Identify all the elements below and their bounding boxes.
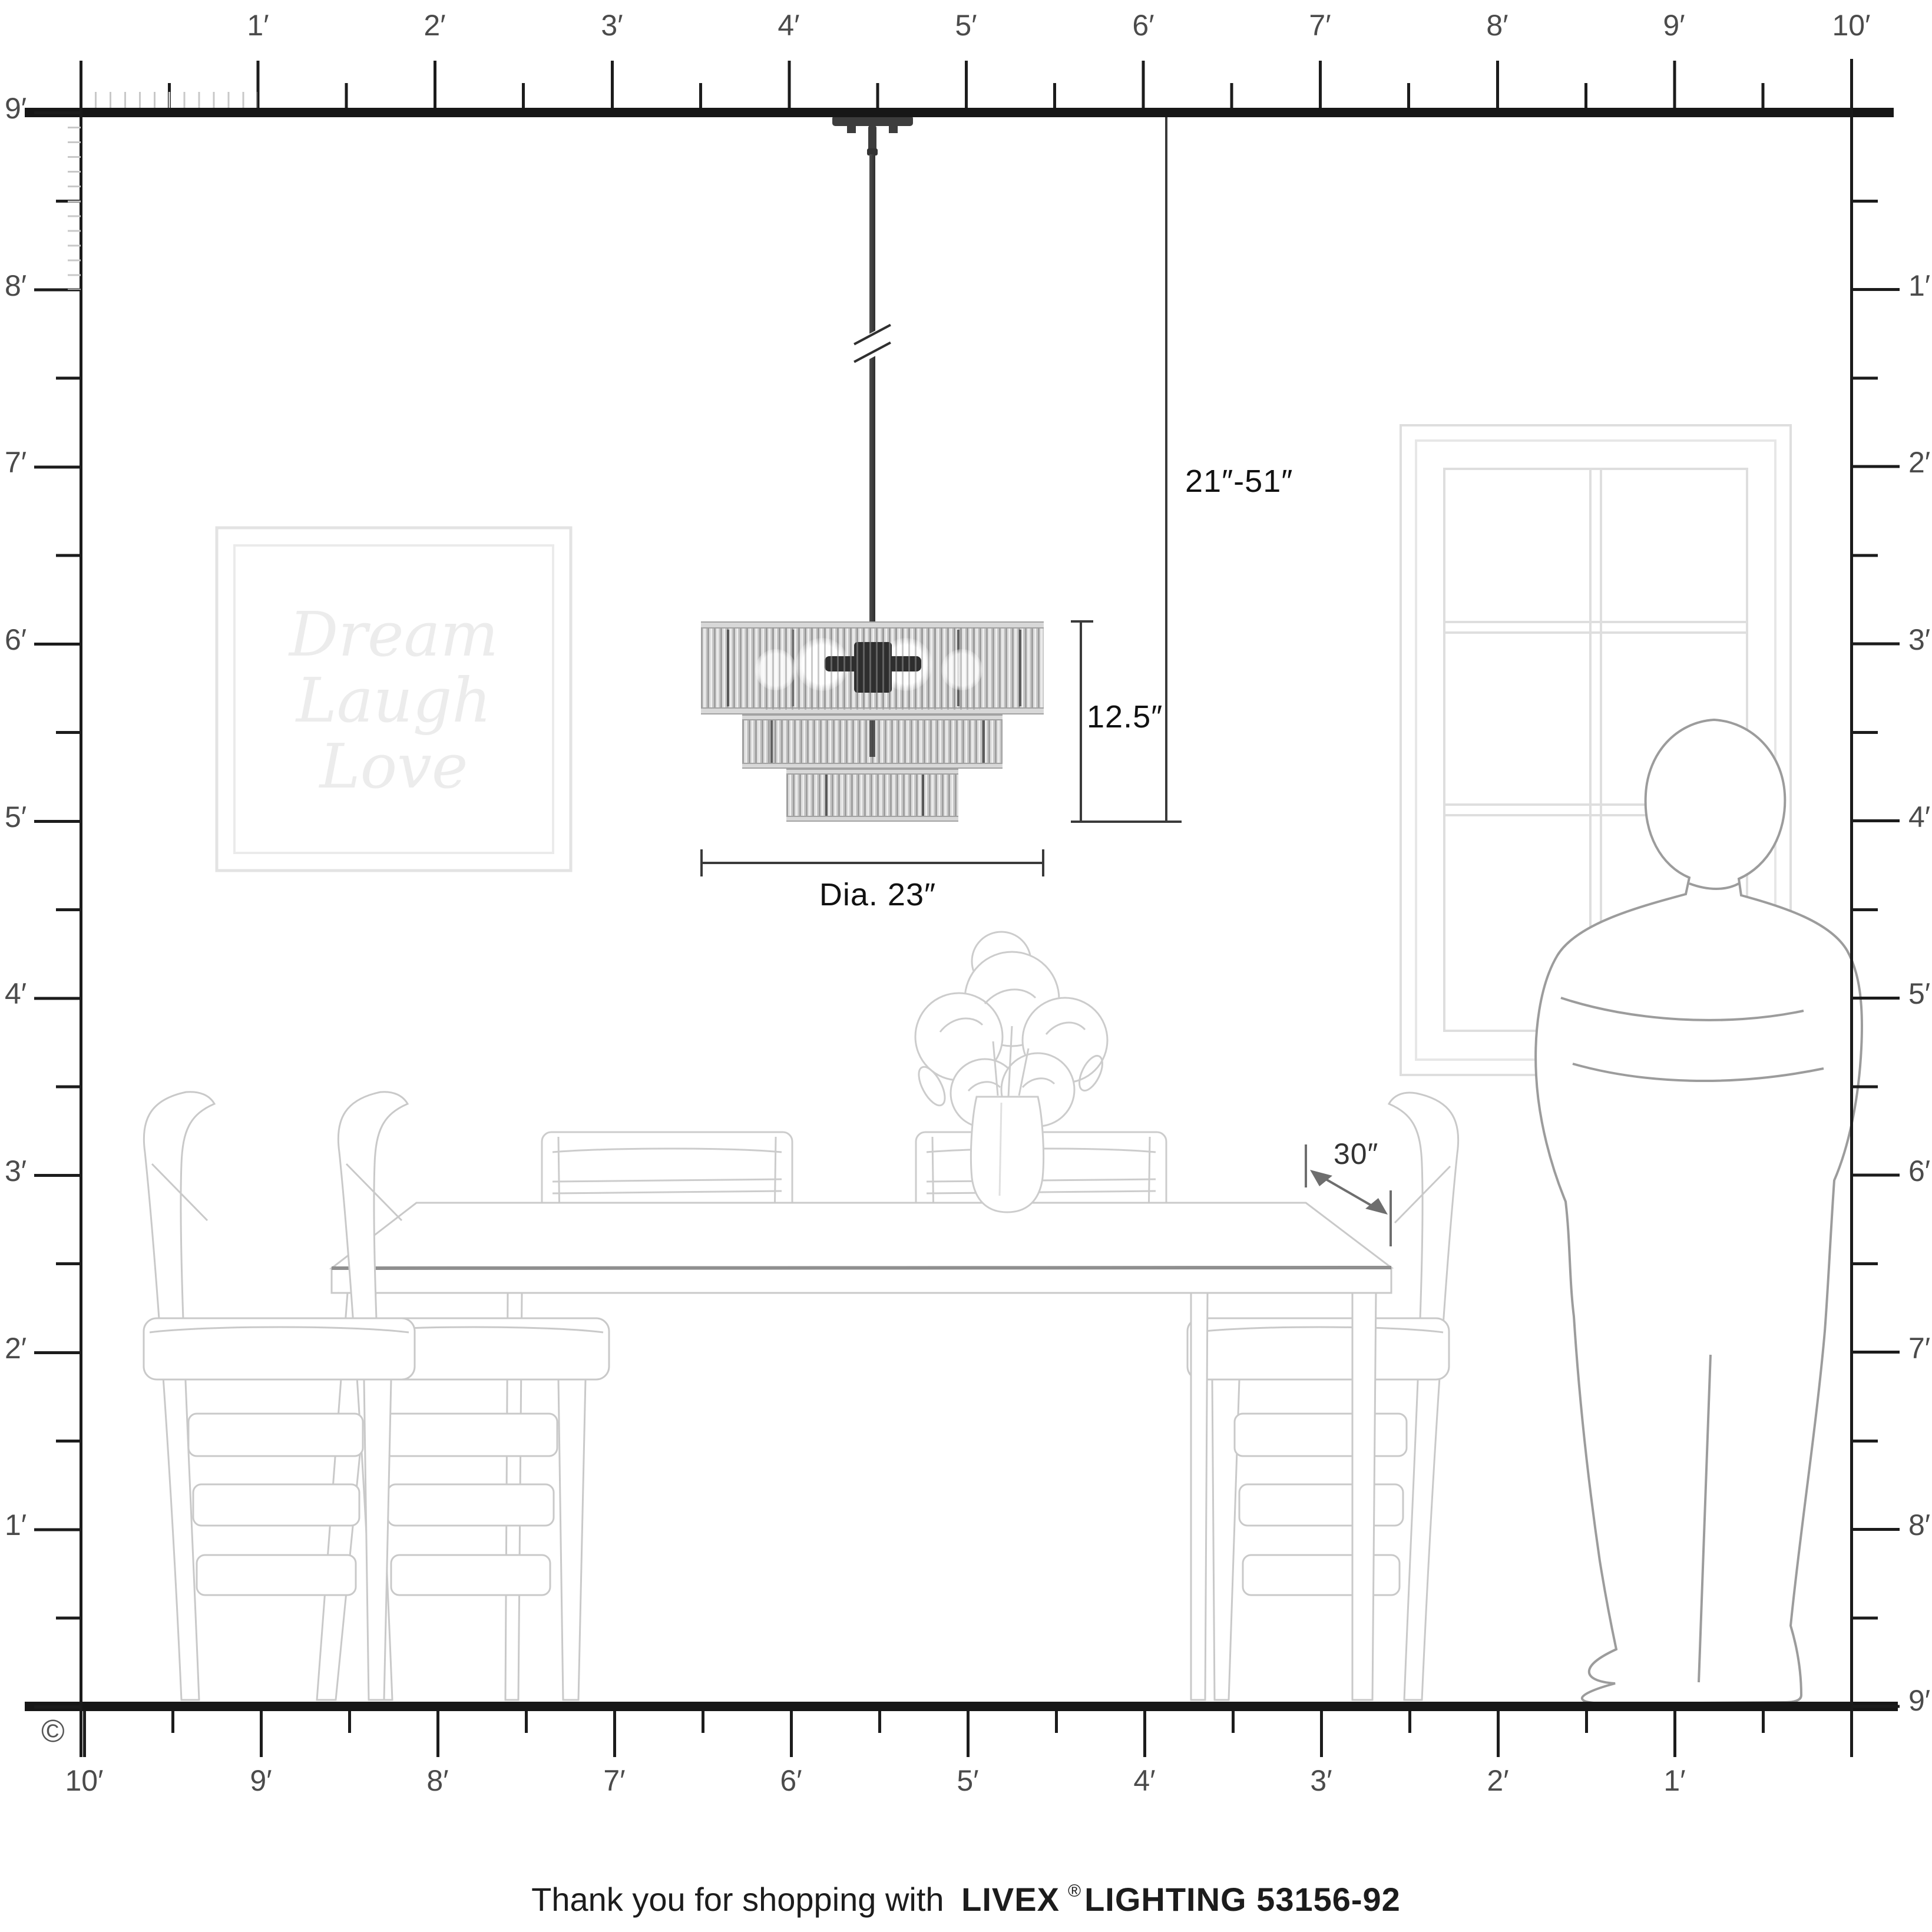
table-depth-label: 30″ bbox=[1334, 1137, 1378, 1171]
bottom-ruler-label: 10′ bbox=[46, 1764, 123, 1798]
hanging-range-label: 21″-51″ bbox=[1185, 463, 1293, 499]
bottom-ruler-label: 4′ bbox=[1106, 1764, 1183, 1798]
downrod-upper bbox=[869, 154, 875, 337]
shade-texture-overlay bbox=[766, 627, 980, 710]
top-ruler-label: 4′ bbox=[750, 8, 827, 42]
top-ruler-label: 2′ bbox=[396, 8, 473, 42]
bottom-ruler-label: 2′ bbox=[1460, 1764, 1536, 1798]
stem bbox=[868, 125, 876, 151]
right-ruler-label: 7′ bbox=[1908, 1331, 1930, 1365]
downrod-lower bbox=[869, 353, 875, 621]
left-ruler-label: 1′ bbox=[5, 1508, 27, 1542]
right-ruler-label: 5′ bbox=[1908, 977, 1930, 1011]
diameter-line bbox=[701, 862, 1044, 864]
bottom-ruler-label: 6′ bbox=[753, 1764, 829, 1798]
fixture-height-cap-top bbox=[1071, 620, 1093, 623]
footer-suffix: LIGHTING 53156-92 bbox=[1084, 1881, 1401, 1918]
top-ruler-half-ticks bbox=[168, 83, 1765, 108]
diameter-tick-left bbox=[700, 849, 703, 876]
dimension-diagram: 21″-51″ 12.5″ Dia. 23″ 30″ Dream Laugh L… bbox=[0, 0, 1932, 1932]
table-apron bbox=[332, 1268, 1391, 1293]
bottom-ruler-label: 5′ bbox=[929, 1764, 1006, 1798]
room-scene bbox=[0, 0, 1932, 1932]
top-ruler-label: 6′ bbox=[1105, 8, 1182, 42]
bottom-ruler-label: 8′ bbox=[399, 1764, 476, 1798]
table-leg-front-right bbox=[1352, 1293, 1376, 1700]
canopy-tab-left bbox=[847, 125, 856, 133]
table-top bbox=[332, 1203, 1391, 1268]
fixture-height-label: 12.5″ bbox=[1087, 699, 1163, 735]
right-ruler-label: 3′ bbox=[1908, 623, 1930, 657]
shared-cap-bottom bbox=[1071, 821, 1182, 823]
left-ruler-label: 3′ bbox=[5, 1154, 27, 1188]
bottom-ruler-label: 1′ bbox=[1636, 1764, 1713, 1798]
top-ruler-label: 10′ bbox=[1813, 8, 1890, 42]
floor-line bbox=[25, 1702, 1898, 1711]
right-ruler-label: 2′ bbox=[1908, 445, 1930, 479]
left-ruler-label: 4′ bbox=[5, 977, 27, 1011]
left-ruler-label: 5′ bbox=[5, 800, 27, 834]
left-ruler-label: 2′ bbox=[5, 1331, 27, 1365]
left-ruler-label: 8′ bbox=[5, 269, 27, 303]
right-ruler-label: 4′ bbox=[1908, 800, 1930, 834]
bottom-ruler-half-ticks bbox=[171, 1711, 1765, 1733]
inner-stem bbox=[869, 720, 875, 757]
left-ruler-inch-ticks bbox=[68, 127, 81, 290]
top-ruler-label: 8′ bbox=[1459, 8, 1536, 42]
top-ruler-label: 7′ bbox=[1282, 8, 1358, 42]
top-ruler-label: 5′ bbox=[928, 8, 1004, 42]
top-ruler-inch-ticks bbox=[95, 92, 257, 108]
ceiling-line bbox=[25, 108, 1894, 117]
right-ruler-label: 9′ bbox=[1908, 1683, 1930, 1718]
bottom-ruler-label: 9′ bbox=[223, 1764, 299, 1798]
fixture-height-line bbox=[1080, 621, 1082, 822]
left-ruler-label: 6′ bbox=[5, 623, 27, 657]
footer-text: Thank you for shopping with LIVEX®LIGHTI… bbox=[0, 1880, 1932, 1918]
bottom-ruler-label: 7′ bbox=[576, 1764, 653, 1798]
top-ruler-label: 9′ bbox=[1636, 8, 1712, 42]
registered-trademark-icon: ® bbox=[1068, 1881, 1081, 1901]
table-leg-back-right bbox=[1191, 1293, 1207, 1700]
chair-right bbox=[1187, 1093, 1458, 1700]
art-text-line2: Laugh bbox=[217, 668, 571, 733]
shade-tier-bottom bbox=[786, 769, 958, 822]
top-ruler-label: 3′ bbox=[574, 8, 650, 42]
left-ruler-half-ticks bbox=[56, 200, 81, 1620]
copyright-mark: © bbox=[41, 1713, 65, 1749]
top-ruler-label: 1′ bbox=[220, 8, 296, 42]
art-text-line3: Love bbox=[217, 734, 571, 799]
left-ruler-label: 9′ bbox=[5, 91, 27, 125]
bottom-ruler-label: 3′ bbox=[1283, 1764, 1359, 1798]
hanging-range-line bbox=[1165, 117, 1167, 822]
left-ruler-label: 7′ bbox=[5, 445, 27, 479]
canopy-tab-right bbox=[889, 125, 898, 133]
footer-brand: LIVEX bbox=[961, 1881, 1060, 1918]
right-ruler-label: 1′ bbox=[1908, 269, 1930, 303]
right-ruler-label: 8′ bbox=[1908, 1508, 1930, 1542]
right-ruler-label: 6′ bbox=[1908, 1154, 1930, 1188]
right-ruler-half-ticks bbox=[1853, 200, 1878, 1620]
art-text-line1: Dream bbox=[217, 602, 571, 667]
fixture-diameter-label: Dia. 23″ bbox=[819, 876, 937, 913]
footer-prefix: Thank you for shopping with bbox=[531, 1881, 944, 1918]
diameter-tick-right bbox=[1042, 849, 1044, 876]
